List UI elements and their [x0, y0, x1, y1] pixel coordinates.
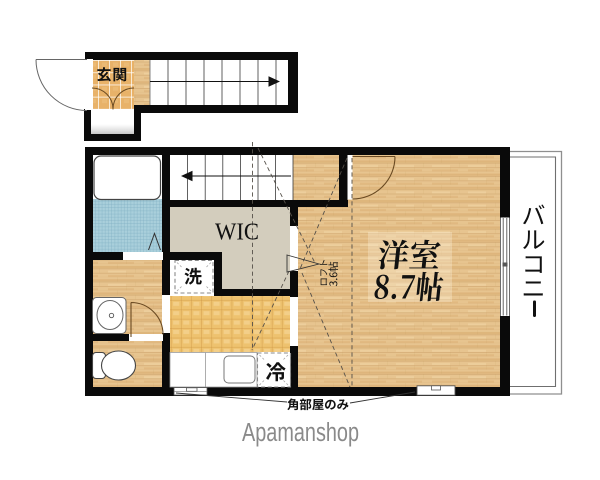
- svg-text:WIC: WIC: [215, 220, 259, 246]
- svg-text:Apamanshop: Apamanshop: [242, 419, 359, 447]
